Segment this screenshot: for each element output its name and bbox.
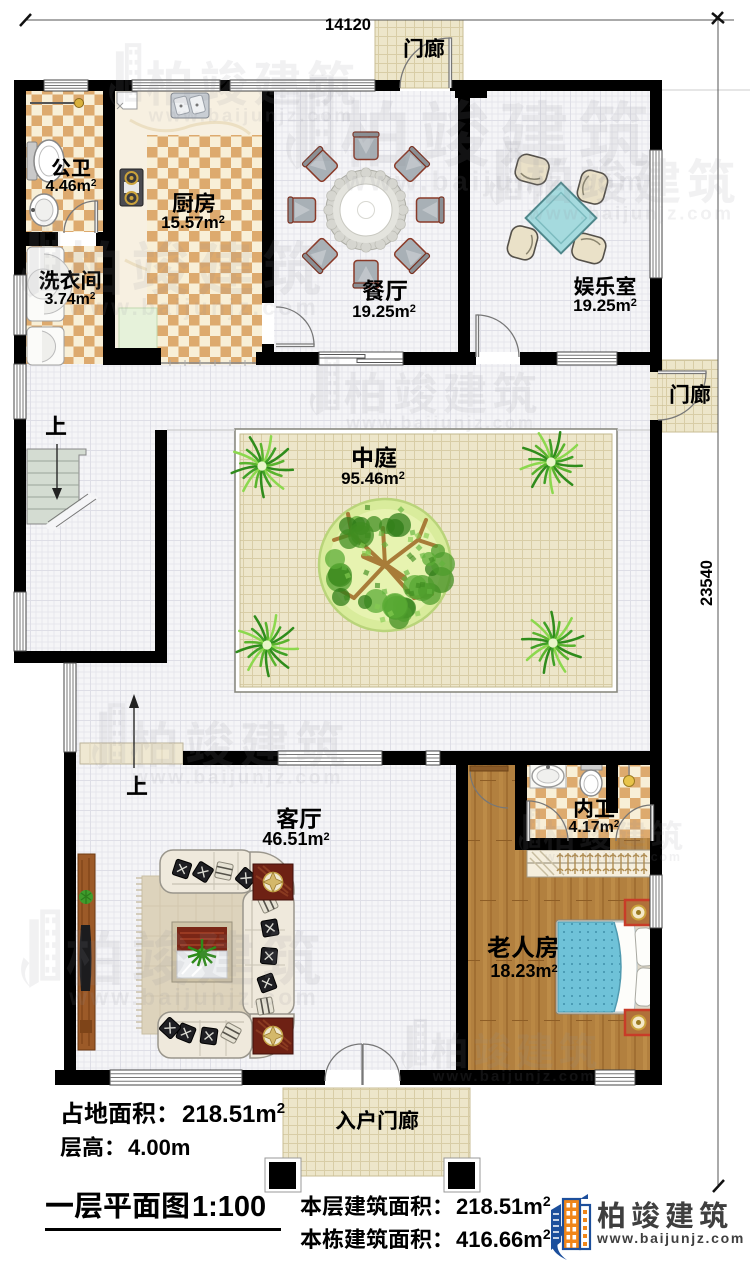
svg-text:19.25m2: 19.25m2 (573, 296, 637, 315)
svg-text:19.25m2: 19.25m2 (352, 302, 416, 321)
svg-text:23540: 23540 (698, 560, 716, 606)
svg-text:218.51m2: 218.51m2 (182, 1100, 285, 1128)
svg-text:95.46m2: 95.46m2 (341, 469, 405, 488)
svg-text:18.23m2: 18.23m2 (490, 961, 557, 981)
svg-text:416.66m2: 416.66m2 (456, 1226, 551, 1252)
svg-text:www.baijunjz.com: www.baijunjz.com (596, 1230, 745, 1246)
svg-text:1:100: 1:100 (192, 1191, 266, 1223)
svg-text:4.46m2: 4.46m2 (46, 178, 97, 195)
svg-text:218.51m2: 218.51m2 (456, 1193, 551, 1219)
svg-text:46.51m2: 46.51m2 (262, 829, 329, 849)
svg-text:15.57m2: 15.57m2 (161, 213, 225, 232)
svg-text:4.00m: 4.00m (128, 1135, 190, 1160)
svg-text:14120: 14120 (325, 16, 371, 34)
